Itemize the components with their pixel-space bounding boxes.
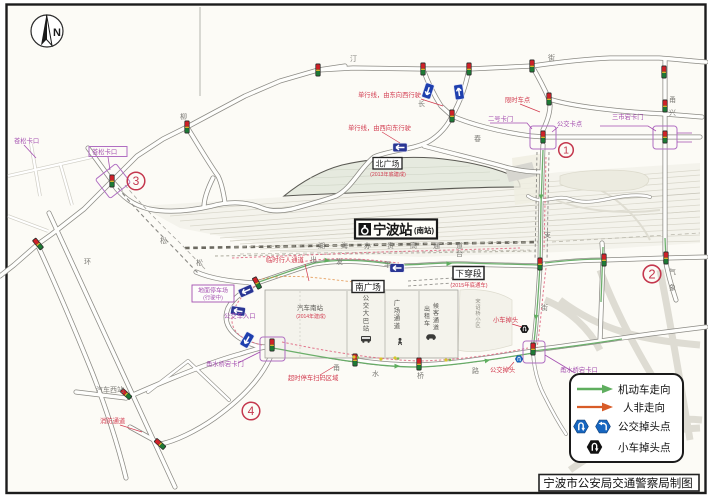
svg-text:2: 2 bbox=[648, 267, 655, 282]
svg-text:1: 1 bbox=[563, 145, 569, 157]
svg-text:广场通道: 广场通道 bbox=[394, 298, 401, 330]
svg-text:湖海办贵高通道: 湖海办贵高通道 bbox=[318, 241, 479, 250]
svg-text:汀: 汀 bbox=[350, 55, 357, 63]
svg-text:单行线，由东向西行驶: 单行线，由东向西行驶 bbox=[358, 90, 422, 99]
svg-text:二号卡门: 二号卡门 bbox=[488, 114, 513, 123]
svg-text:3: 3 bbox=[133, 174, 140, 188]
svg-text:发: 发 bbox=[336, 257, 343, 266]
svg-text:公交车入口: 公交车入口 bbox=[224, 311, 255, 320]
svg-text:N: N bbox=[53, 27, 61, 39]
svg-text:气: 气 bbox=[669, 267, 676, 276]
svg-text:宋诏桥小区: 宋诏桥小区 bbox=[475, 297, 481, 329]
svg-text:汽车西站: 汽车西站 bbox=[96, 385, 124, 394]
svg-text:松: 松 bbox=[196, 258, 203, 267]
svg-text:公交掉头点: 公交掉头点 bbox=[618, 420, 671, 433]
svg-text:消防通道: 消防通道 bbox=[100, 416, 126, 425]
svg-text:单行线，由西向东行驶: 单行线，由西向东行驶 bbox=[348, 123, 412, 132]
svg-text:宁波站: 宁波站 bbox=[373, 222, 413, 238]
svg-text:出租车: 出租车 bbox=[424, 305, 430, 327]
svg-text:春: 春 bbox=[474, 134, 481, 143]
svg-text:象: 象 bbox=[669, 283, 676, 292]
svg-text:松: 松 bbox=[160, 236, 167, 245]
svg-text:甬水桥宕卡门: 甬水桥宕卡门 bbox=[206, 359, 244, 368]
svg-text:人非走向: 人非走向 bbox=[623, 401, 665, 414]
svg-text:柳: 柳 bbox=[180, 112, 187, 121]
svg-text:(行驶中): (行驶中) bbox=[203, 294, 223, 302]
svg-text:街: 街 bbox=[548, 53, 555, 62]
svg-text:公交大巴站: 公交大巴站 bbox=[363, 295, 370, 332]
svg-text:兴: 兴 bbox=[669, 108, 676, 117]
svg-text:宁波市公安局交通警察局制图: 宁波市公安局交通警察局制图 bbox=[543, 476, 693, 490]
svg-text:公交掉头: 公交掉头 bbox=[490, 365, 515, 374]
svg-text:甬: 甬 bbox=[333, 363, 340, 372]
svg-text:下穿段: 下穿段 bbox=[455, 268, 482, 279]
svg-text:环: 环 bbox=[84, 258, 91, 266]
svg-text:北广场: 北广场 bbox=[376, 158, 400, 168]
svg-text:甬: 甬 bbox=[669, 95, 676, 104]
svg-text:(南站): (南站) bbox=[414, 225, 434, 235]
svg-text:长: 长 bbox=[418, 99, 425, 108]
svg-text:水: 水 bbox=[372, 369, 379, 378]
svg-text:街: 街 bbox=[541, 303, 548, 312]
svg-text:支: 支 bbox=[544, 230, 551, 239]
svg-text:公交卡点: 公交卡点 bbox=[557, 119, 582, 128]
svg-text:地面停车场: 地面停车场 bbox=[198, 287, 228, 295]
svg-text:小车掉头: 小车掉头 bbox=[493, 315, 518, 324]
svg-text:路: 路 bbox=[472, 366, 479, 375]
svg-text:4: 4 bbox=[248, 404, 255, 418]
svg-text:小车掉头点: 小车掉头点 bbox=[618, 441, 671, 454]
svg-text:三市宕卡门: 三市宕卡门 bbox=[612, 112, 643, 121]
svg-text:限时车点: 限时车点 bbox=[505, 95, 530, 104]
svg-text:临时行人通道: 临时行人通道 bbox=[266, 255, 304, 264]
svg-text:机动车走向: 机动车走向 bbox=[618, 383, 671, 396]
svg-text:甬水桥宕卡口: 甬水桥宕卡口 bbox=[560, 365, 598, 374]
svg-text:桥: 桥 bbox=[417, 371, 424, 380]
svg-text:台: 台 bbox=[456, 249, 463, 258]
svg-text:苍松卡口: 苍松卡口 bbox=[92, 147, 117, 156]
svg-text:南广场: 南广场 bbox=[355, 281, 381, 292]
svg-text:(2013年底建成): (2013年底建成) bbox=[370, 170, 406, 178]
svg-text:候客通道: 候客通道 bbox=[433, 302, 439, 332]
svg-text:超时停车扫码区域: 超时停车扫码区域 bbox=[288, 373, 339, 382]
svg-text:苍松卡口: 苍松卡口 bbox=[14, 136, 39, 145]
svg-text:(2015年底通车): (2015年底通车) bbox=[450, 281, 487, 289]
svg-text:平: 平 bbox=[384, 261, 391, 269]
svg-text:汽车南站: 汽车南站 bbox=[297, 303, 324, 312]
svg-text:(2014年建成): (2014年建成) bbox=[296, 313, 326, 320]
svg-text:出: 出 bbox=[310, 255, 317, 264]
